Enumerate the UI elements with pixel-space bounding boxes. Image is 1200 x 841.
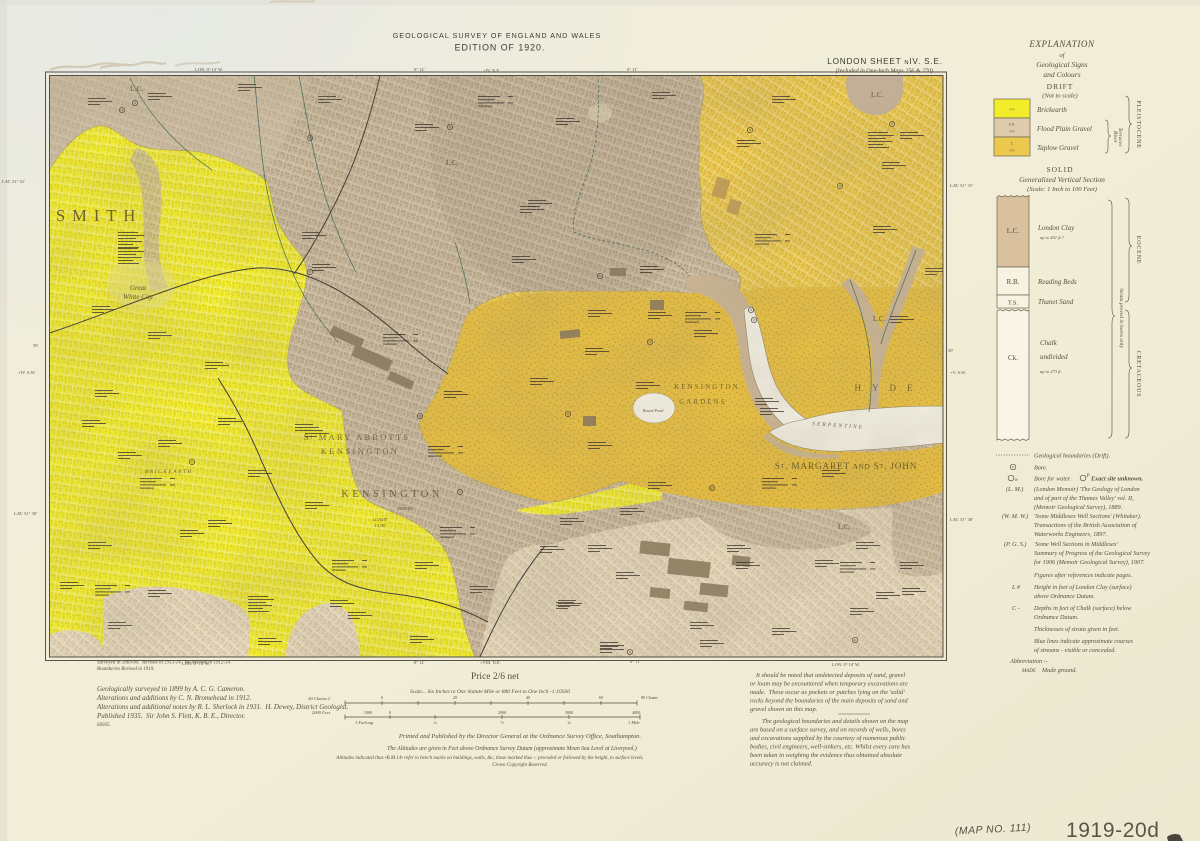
svg-text:1 Furlong: 1 Furlong <box>355 720 374 725</box>
svg-text:P: P <box>1086 474 1090 479</box>
svg-text:T.S.: T.S. <box>1008 300 1019 307</box>
svg-text:Surveyed in 1869-80. Revised: Surveyed in 1869-80. Revised in 1913-14.… <box>97 661 231 666</box>
svg-text:The geological boundaries and: The geological boundaries and details sh… <box>762 718 908 725</box>
svg-text:KENSINGTON: KENSINGTON <box>341 489 442 500</box>
svg-text:0° 11': 0° 11' <box>630 659 641 664</box>
svg-text:DRIFT: DRIFT <box>1047 82 1074 91</box>
svg-text:SMITH: SMITH <box>56 206 142 225</box>
svg-text:and Colours: and Colours <box>1043 70 1080 79</box>
svg-text:LON. 0° 13' W.: LON. 0° 13' W. <box>182 661 210 666</box>
svg-text:L.C.: L.C. <box>1007 227 1020 235</box>
svg-text:≈≈: ≈≈ <box>1009 130 1015 135</box>
svg-text:L.C.: L.C. <box>838 523 851 531</box>
svg-text:been taken in weighing the evi: been taken in weighing the evidence thus… <box>750 752 902 759</box>
svg-text:1 Mile: 1 Mile <box>628 720 640 725</box>
svg-text:Scale... Six Inches to One Sta: Scale... Six Inches to One Statute Mile … <box>410 689 570 695</box>
svg-text:HYDE: HYDE <box>855 383 924 393</box>
svg-text:Blue lines indicate approximat: Blue lines indicate approximate courses <box>1034 638 1134 645</box>
svg-text:Round Pond: Round Pond <box>642 408 665 413</box>
svg-text:and excavations supplied by th: and excavations supplied by the courtesy… <box>750 735 906 742</box>
svg-text:40: 40 <box>526 695 530 700</box>
svg-text:London Clay: London Clay <box>1037 224 1075 232</box>
svg-text:Bore.: Bore. <box>1034 465 1047 472</box>
svg-text:+IV. S.W.: +IV. S.W. <box>18 370 36 375</box>
svg-text:LOAMY: LOAMY <box>372 517 388 522</box>
svg-text:EXPLANATION: EXPLANATION <box>1028 39 1095 49</box>
svg-text:LON. 0° 13' W.: LON. 0° 13' W. <box>195 67 223 72</box>
svg-text:(London Memoir) 'The Geology o: (London Memoir) 'The Geology of London <box>1034 486 1140 493</box>
svg-text:1000: 1000 <box>364 710 372 715</box>
svg-text:L.C.: L.C. <box>873 315 886 323</box>
svg-text:0° 12': 0° 12' <box>414 660 425 665</box>
svg-text:Reading Beds: Reading Beds <box>1037 278 1077 286</box>
svg-text:and of part of the Thames Vall: and of part of the Thames Valley' vol. I… <box>1034 495 1134 502</box>
svg-text:2000: 2000 <box>498 710 506 715</box>
svg-text:Ordnance Datum.: Ordnance Datum. <box>1034 614 1078 621</box>
svg-text:4000: 4000 <box>632 710 640 715</box>
svg-text:L.C.: L.C. <box>130 84 143 93</box>
svg-text:Made ground.: Made ground. <box>1041 667 1077 674</box>
svg-text:undivided: undivided <box>1040 353 1068 361</box>
svg-text:Generalized Vertical Section: Generalized Vertical Section <box>1019 175 1105 184</box>
svg-text:The Altitudes are given in Fee: The Altitudes are given in Feet above Or… <box>387 745 637 752</box>
svg-text:Ck.: Ck. <box>1008 354 1018 362</box>
svg-text:Thanet Sand: Thanet Sand <box>1038 298 1074 306</box>
svg-text:Alterations and additions by C: Alterations and additions by C. N. Brome… <box>96 694 252 702</box>
svg-text:LAT. 51° 31': LAT. 51° 31' <box>2 179 25 184</box>
svg-text:R.B.: R.B. <box>1007 278 1020 286</box>
svg-text:Strata proved in bores only: Strata proved in bores only <box>1118 288 1124 348</box>
svg-text:≈≈: ≈≈ <box>1009 108 1015 113</box>
svg-text:Height in feet of London Clay: Height in feet of London Clay (surface) <box>1033 584 1132 591</box>
svg-text:(Memoir Geological Survey), 18: (Memoir Geological Survey), 1889. <box>1034 504 1122 511</box>
svg-text:EDITION OF 1920.: EDITION OF 1920. <box>455 43 546 53</box>
svg-text:St MARY ABBOTTS: St MARY ABBOTTS <box>304 432 411 442</box>
svg-text:bodies, civil engineers, well-: bodies, civil engineers, well-sinkers, e… <box>750 744 911 751</box>
svg-text:0° 12': 0° 12' <box>414 67 425 72</box>
svg-text:Thicknesses of strata given in: Thicknesses of strata given in feet. <box>1034 626 1119 633</box>
svg-text:Exact site unknown.: Exact site unknown. <box>1090 476 1144 483</box>
svg-text:accuracy is not claimed.: accuracy is not claimed. <box>750 761 813 768</box>
svg-text:for 1906 (Memoir Geological Su: for 1906 (Memoir Geological Survey), 190… <box>1034 559 1145 566</box>
svg-text:LONDON SHEET NIV. S.E.: LONDON SHEET NIV. S.E. <box>827 57 943 66</box>
svg-text:0: 0 <box>389 710 391 715</box>
svg-text:GRAVEL: GRAVEL <box>397 506 414 511</box>
svg-text:20: 20 <box>453 695 457 700</box>
svg-text:LON. 0° 10' W.: LON. 0° 10' W. <box>832 662 860 667</box>
svg-text:Transactions of the British As: Transactions of the British Association … <box>1034 522 1138 529</box>
svg-text:gravel shown on this map.: gravel shown on this map. <box>750 706 818 713</box>
svg-text:Boundaries Revised in 1919.: Boundaries Revised in 1919. <box>97 667 155 672</box>
svg-text:Printed and Published by the D: Printed and Published by the Director Ge… <box>398 733 642 740</box>
svg-text:rocks beyond the boundaries of: rocks beyond the boundaries of the main … <box>750 698 909 705</box>
svg-text:Geological boundaries (Drift).: Geological boundaries (Drift). <box>1034 453 1110 460</box>
svg-text:F.P.: F.P. <box>1009 122 1015 127</box>
svg-text:LAT. 51° 31': LAT. 51° 31' <box>950 183 973 188</box>
svg-text:50': 50' <box>948 348 954 353</box>
svg-text:Abbreviation :-: Abbreviation :- <box>1009 658 1048 665</box>
svg-text:Waterworks Engineers, 1897.: Waterworks Engineers, 1897. <box>1034 531 1107 538</box>
svg-text:SOLID: SOLID <box>1046 165 1073 174</box>
svg-text:up to 451 ft.?: up to 451 ft.? <box>1040 235 1065 240</box>
svg-text:(W. M. W.): (W. M. W.) <box>1002 513 1028 520</box>
svg-text:Alterations and additional not: Alterations and additional notes by R. L… <box>96 703 348 711</box>
svg-text:Geological Signs: Geological Signs <box>1036 60 1088 69</box>
svg-text:0: 0 <box>381 695 383 700</box>
svg-text:'Some Middlesex Well Sections': 'Some Middlesex Well Sections' (Whitaker… <box>1034 513 1141 520</box>
svg-text:EOCENE: EOCENE <box>1135 236 1141 264</box>
svg-text:Summary of Progress of the Geo: Summary of Progress of the Geological Su… <box>1034 550 1150 557</box>
svg-text:T.: T. <box>1010 141 1013 146</box>
svg-text:Published 1935. Sir John S. F: Published 1935. Sir John S. Flett, K. B.… <box>96 712 246 720</box>
svg-text:+IV. N.E.: +IV. N.E. <box>483 68 500 73</box>
svg-text:C -: C - <box>1012 605 1020 612</box>
svg-text:BRICKEARTH: BRICKEARTH <box>145 469 193 475</box>
svg-text:CLAY: CLAY <box>375 523 386 528</box>
svg-text:50': 50' <box>33 343 39 348</box>
svg-text:60: 60 <box>599 695 603 700</box>
svg-text:'Some Well Sections in Middles: 'Some Well Sections in Middlesex' <box>1034 541 1119 548</box>
svg-text:KENSINGTON: KENSINGTON <box>674 384 740 391</box>
svg-text:are based on a surface survey,: are based on a surface survey, and on re… <box>750 727 906 734</box>
svg-text:80 Chains: 80 Chains <box>641 695 658 700</box>
svg-text:Crown Copyright Reserved.: Crown Copyright Reserved. <box>492 763 548 768</box>
svg-text:Altitudes indicated thus •B.M.: Altitudes indicated thus •B.M.14• refer … <box>335 756 643 761</box>
svg-text:CRETACEOUS: CRETACEOUS <box>1135 351 1141 398</box>
svg-text:(L. M.): (L. M.) <box>1006 486 1023 493</box>
svg-text:It should be noted that undete: It should be noted that undetected depos… <box>755 672 905 679</box>
svg-text:above Ordnance Datum.: above Ordnance Datum. <box>1034 593 1095 600</box>
svg-text:0° 11': 0° 11' <box>627 67 638 72</box>
svg-text:Depths in feet of Chalk (surfa: Depths in feet of Chalk (surface) below <box>1033 605 1132 612</box>
svg-text:(Not to scale): (Not to scale) <box>1042 93 1077 100</box>
svg-text:Flood Plain Gravel: Flood Plain Gravel <box>1036 125 1092 133</box>
svg-text:40 Chains 2: 40 Chains 2 <box>308 696 331 701</box>
svg-text:Terraces: Terraces <box>1117 127 1123 146</box>
svg-text:3000: 3000 <box>565 710 573 715</box>
svg-text:LAT. 51° 30': LAT. 51° 30' <box>950 517 973 522</box>
svg-text:60935.: 60935. <box>97 723 111 728</box>
svg-text:Geologically surveyed in 1899: Geologically surveyed in 1899 by A. C. G… <box>97 685 245 693</box>
svg-text:LAT. 51° 30': LAT. 51° 30' <box>14 511 37 516</box>
svg-text:+V. S.W.: +V. S.W. <box>950 370 966 375</box>
svg-text:Figures after references indic: Figures after references indicate pages. <box>1033 572 1132 579</box>
svg-text:+VIII. N.E.: +VIII. N.E. <box>480 660 501 665</box>
svg-text:≈≈: ≈≈ <box>1009 149 1015 154</box>
svg-text:2000 Feet: 2000 Feet <box>312 710 331 715</box>
svg-text:1919-20d: 1919-20d <box>1066 819 1160 841</box>
svg-text:PLEISTOCENE: PLEISTOCENE <box>1135 100 1141 148</box>
svg-text:Price 2/6 net: Price 2/6 net <box>471 672 519 682</box>
svg-text:White City: White City <box>123 293 154 301</box>
svg-text:or loam may be encountered whe: or loam may be encountered when temporar… <box>750 681 908 688</box>
svg-text:GARDENS: GARDENS <box>679 399 727 406</box>
svg-text:up to 273 ft.: up to 273 ft. <box>1040 369 1062 374</box>
svg-text:ST. MARGARET AND ST. JOHN: ST. MARGARET AND ST. JOHN <box>775 462 918 472</box>
svg-text:Great: Great <box>130 284 147 292</box>
svg-text:GEOLOGICAL SURVEY OF ENGLAND A: GEOLOGICAL SURVEY OF ENGLAND AND WALES <box>393 31 602 40</box>
svg-text:made. These occur as pockets: made. These occur as pockets or patches … <box>750 689 905 696</box>
svg-text:L.C.: L.C. <box>871 91 884 99</box>
svg-text:Brickearth: Brickearth <box>1037 106 1067 114</box>
svg-text:L #: L # <box>1011 584 1021 591</box>
svg-text:(P. G. S.): (P. G. S.) <box>1004 541 1026 548</box>
svg-text:L.C.: L.C. <box>446 159 459 167</box>
svg-text:of streams - visible or concea: of streams - visible or concealed. <box>1034 647 1116 654</box>
svg-text:Chalk: Chalk <box>1040 339 1058 347</box>
svg-text:KENSINGTON: KENSINGTON <box>321 446 400 456</box>
svg-text:MADE: MADE <box>1021 669 1036 674</box>
svg-text:Taplow Gravel: Taplow Gravel <box>1037 144 1079 152</box>
svg-text:(Scale: 1 Inch to 100 Feet): (Scale: 1 Inch to 100 Feet) <box>1027 186 1097 193</box>
svg-text:Bore for water.: Bore for water. <box>1034 476 1071 483</box>
